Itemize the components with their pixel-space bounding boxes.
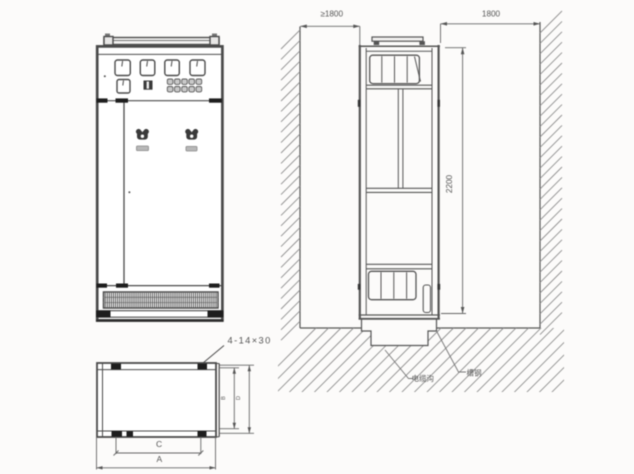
svg-text:C: C [156,439,162,449]
svg-text:A: A [157,454,163,464]
svg-text:2200: 2200 [445,174,454,193]
svg-text:≥1800: ≥1800 [320,9,343,18]
svg-text:4-14×30: 4-14×30 [228,336,272,346]
svg-text:B: B [221,396,227,400]
svg-text:电缆沟: 电缆沟 [412,373,435,383]
svg-text:D: D [236,396,242,400]
svg-text:1800: 1800 [482,9,501,18]
svg-text:槽钢: 槽钢 [467,368,482,378]
